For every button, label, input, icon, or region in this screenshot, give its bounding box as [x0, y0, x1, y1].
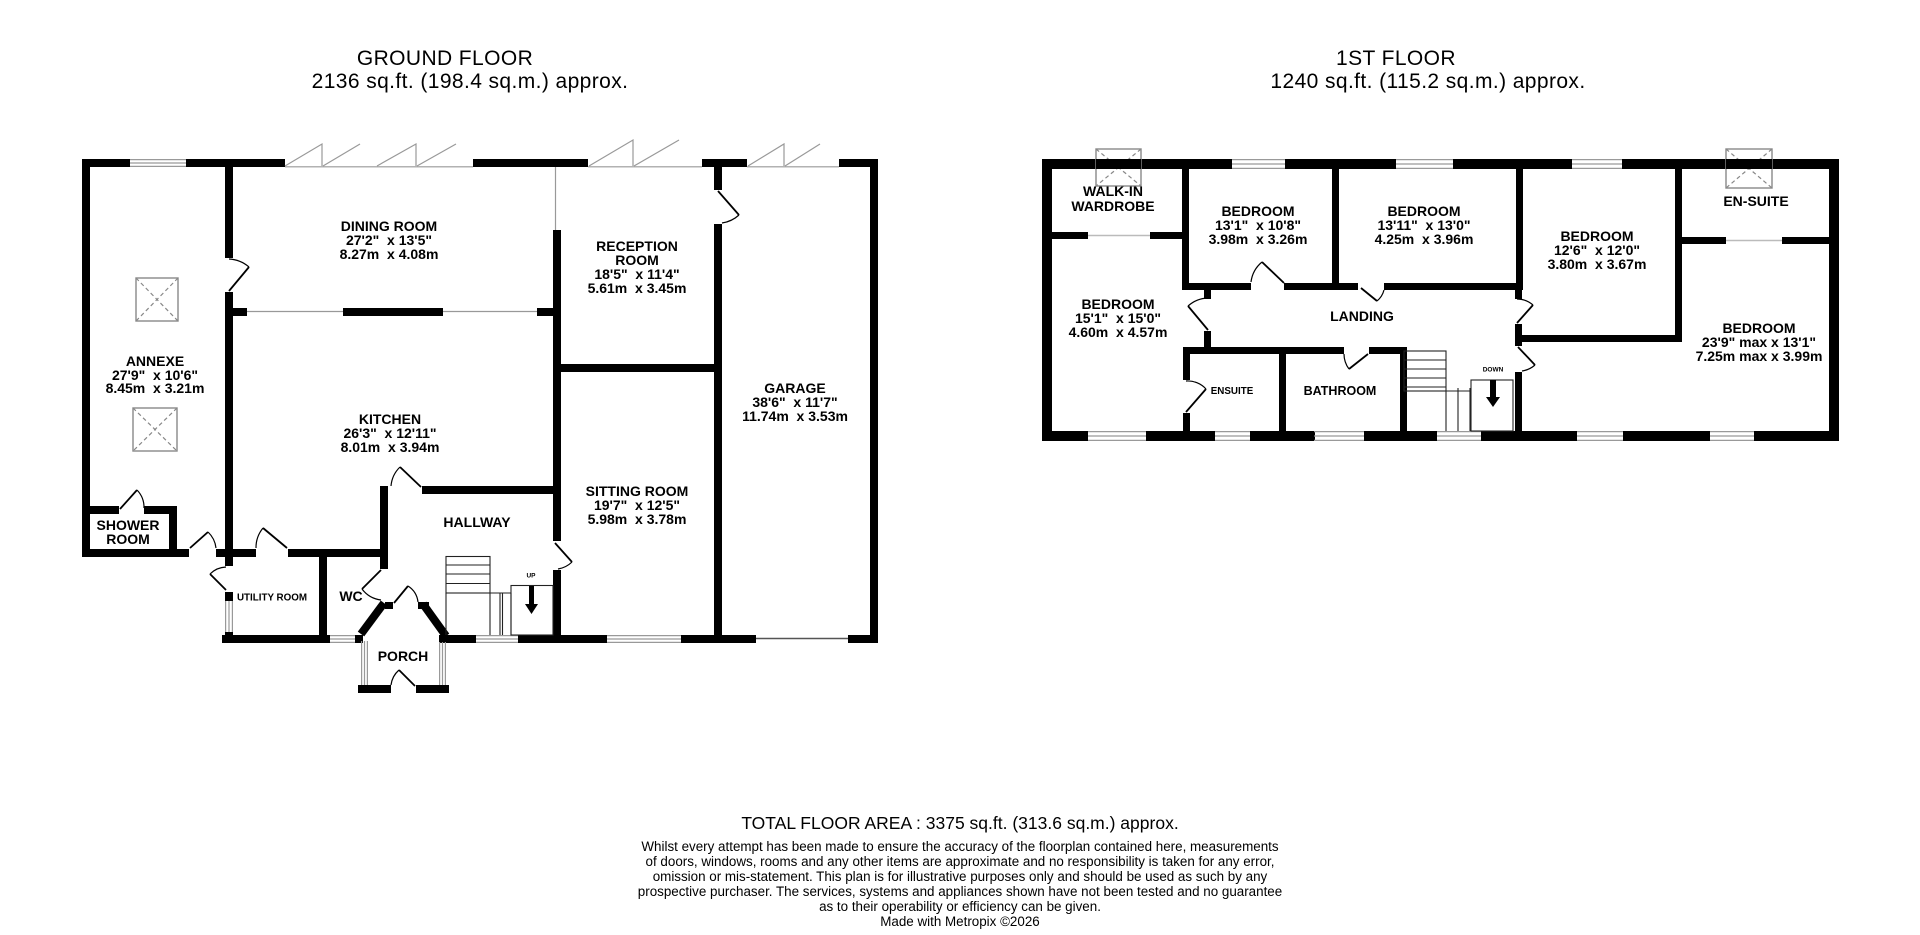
svg-text:8.27m x 4.08m: 8.27m x 4.08m: [340, 246, 439, 262]
svg-text:11.74m x 3.53m: 11.74m x 3.53m: [742, 408, 848, 424]
svg-text:GROUND FLOOR: GROUND FLOOR: [357, 47, 533, 70]
svg-text:1240 sq.ft. (115.2 sq.m.) appr: 1240 sq.ft. (115.2 sq.m.) approx.: [1270, 70, 1585, 93]
svg-text:Whilst every attempt has been: Whilst every attempt has been made to en…: [641, 839, 1278, 854]
svg-text:4.60m x 4.57m: 4.60m x 4.57m: [1069, 324, 1168, 340]
svg-text:WARDROBE: WARDROBE: [1071, 198, 1154, 214]
svg-text:1ST FLOOR: 1ST FLOOR: [1336, 47, 1456, 70]
svg-text:omission or mis-statement. Thi: omission or mis-statement. This plan is …: [653, 869, 1268, 884]
svg-text:of doors, windows, rooms and a: of doors, windows, rooms and any other i…: [646, 854, 1275, 869]
svg-text:3.80m x 3.67m: 3.80m x 3.67m: [1548, 256, 1647, 272]
svg-text:HALLWAY: HALLWAY: [443, 514, 511, 530]
svg-text:prospective purchaser. The ser: prospective purchaser. The services, sys…: [638, 884, 1282, 899]
svg-text:2136 sq.ft. (198.4 sq.m.) appr: 2136 sq.ft. (198.4 sq.m.) approx.: [312, 70, 629, 93]
svg-text:8.01m x 3.94m: 8.01m x 3.94m: [341, 439, 440, 455]
svg-text:Made with Metropix ©2026: Made with Metropix ©2026: [880, 914, 1039, 929]
svg-text:BATHROOM: BATHROOM: [1304, 384, 1377, 398]
svg-text:7.25m max x 3.99m: 7.25m max x 3.99m: [1696, 348, 1823, 364]
svg-text:3.98m x 3.26m: 3.98m x 3.26m: [1209, 231, 1308, 247]
svg-text:EN-SUITE: EN-SUITE: [1723, 193, 1788, 209]
svg-text:5.61m x 3.45m: 5.61m x 3.45m: [588, 280, 687, 296]
svg-text:UTILITY ROOM: UTILITY ROOM: [237, 593, 307, 604]
svg-text:DOWN: DOWN: [1483, 367, 1504, 374]
svg-text:ENSUITE: ENSUITE: [1211, 386, 1254, 397]
svg-text:ROOM: ROOM: [106, 531, 150, 547]
svg-text:WALK-IN: WALK-IN: [1083, 183, 1143, 199]
svg-text:4.25m x 3.96m: 4.25m x 3.96m: [1375, 231, 1474, 247]
svg-text:as to their operability or eff: as to their operability or efficiency ca…: [819, 899, 1101, 914]
svg-text:8.45m x 3.21m: 8.45m x 3.21m: [106, 380, 205, 396]
svg-text:TOTAL FLOOR AREA : 3375 sq.ft.: TOTAL FLOOR AREA : 3375 sq.ft. (313.6 sq…: [741, 813, 1178, 833]
svg-text:UP: UP: [526, 573, 536, 580]
svg-text:LANDING: LANDING: [1330, 308, 1394, 324]
svg-text:PORCH: PORCH: [378, 648, 429, 664]
svg-text:WC: WC: [339, 588, 362, 604]
svg-text:5.98m x 3.78m: 5.98m x 3.78m: [588, 511, 687, 527]
